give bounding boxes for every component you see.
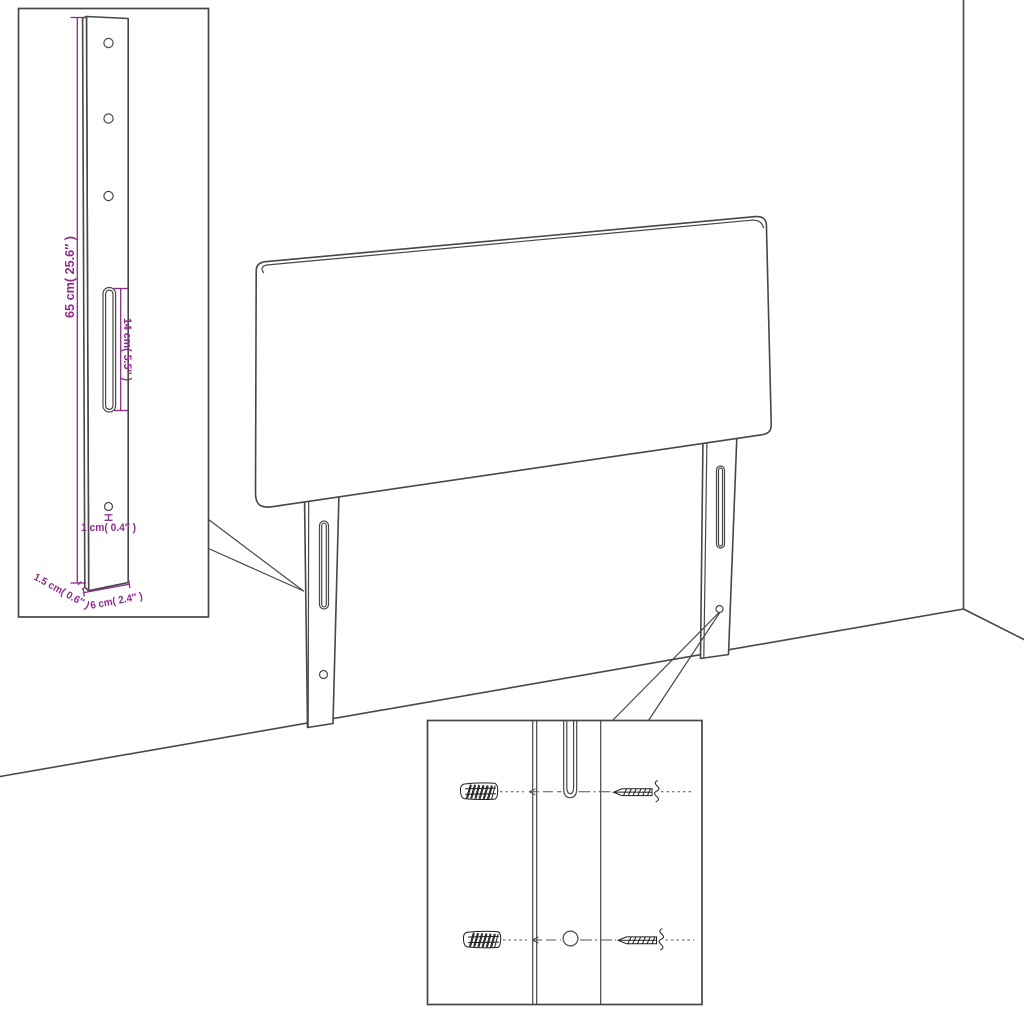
mounting-leg-detail <box>83 17 129 591</box>
leg-side-edge <box>308 496 309 727</box>
headboard-mounting-diagram: 65 cm( 25.6″ ) 14 cm( 5.5″ ) 1 cm( 0.4″ … <box>0 0 1024 1024</box>
screw-hole <box>104 38 113 47</box>
right-mounting-leg <box>701 433 738 659</box>
screw-hole <box>104 114 113 123</box>
dim-hole-diameter-label: 1 cm( 0.4″ ) <box>81 522 136 534</box>
screw-hole <box>105 503 113 511</box>
left-mounting-leg <box>305 493 340 728</box>
inset-frame <box>428 721 703 1005</box>
leg-dimension-inset: 65 cm( 25.6″ ) 14 cm( 5.5″ ) 1 cm( 0.4″ … <box>19 9 209 618</box>
screw-hole <box>104 191 113 200</box>
hardware-inset <box>428 721 703 1005</box>
dim-leg-height-label: 65 cm( 25.6″ ) <box>63 236 77 318</box>
dim-slot-length-label: 14 cm( 5.5″ ) <box>121 318 133 381</box>
headboard-panel <box>256 217 772 508</box>
callout-left-leg <box>209 520 304 592</box>
